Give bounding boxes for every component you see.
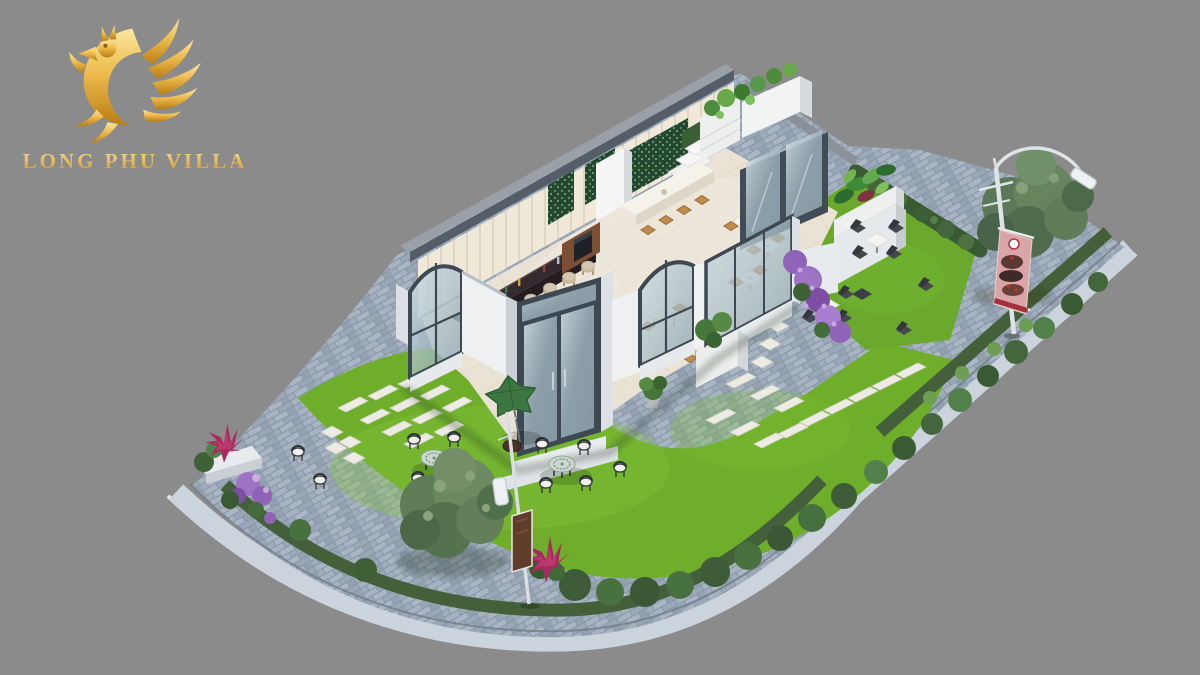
banner-logo-badge bbox=[1009, 239, 1019, 249]
brand-wordmark: LONG PHU VILLA bbox=[23, 149, 248, 173]
sign-panel bbox=[512, 510, 532, 572]
facade-pier-2 bbox=[612, 290, 640, 382]
phoenix-logo: LONG PHU VILLA bbox=[23, 18, 248, 173]
phoenix-dragon-icon bbox=[69, 18, 200, 144]
scene: LONG PHU VILLA bbox=[0, 0, 1200, 675]
render-canvas: LONG PHU VILLA bbox=[0, 0, 1200, 675]
left-end-wall bbox=[396, 284, 410, 346]
